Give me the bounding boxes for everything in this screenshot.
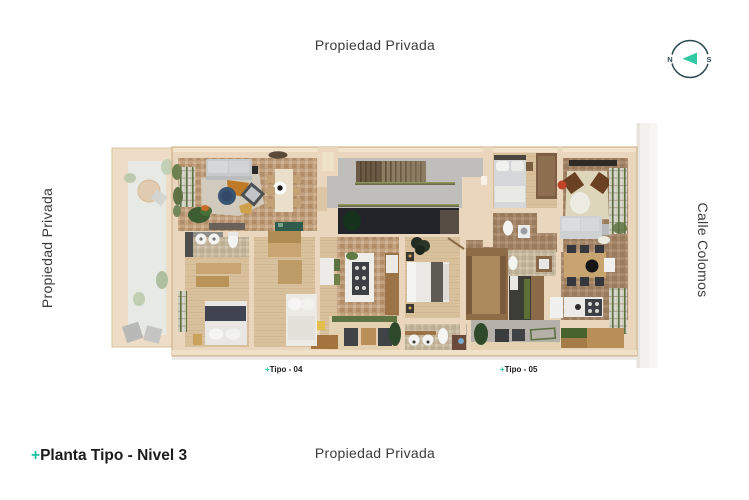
- svg-text:Calle Colomos: Calle Colomos: [695, 203, 711, 298]
- svg-text:Propiedad Privada: Propiedad Privada: [315, 37, 435, 53]
- svg-text:N: N: [667, 55, 672, 64]
- svg-text:S: S: [706, 55, 711, 64]
- svg-text:Propiedad Privada: Propiedad Privada: [39, 188, 55, 308]
- svg-text:+Planta Tipo - Nivel 3: +Planta Tipo - Nivel 3: [31, 447, 187, 464]
- svg-text:+Tipo - 04: +Tipo - 04: [265, 365, 303, 374]
- svg-text:Propiedad Privada: Propiedad Privada: [315, 445, 435, 461]
- svg-text:+Tipo - 05: +Tipo - 05: [500, 365, 538, 374]
